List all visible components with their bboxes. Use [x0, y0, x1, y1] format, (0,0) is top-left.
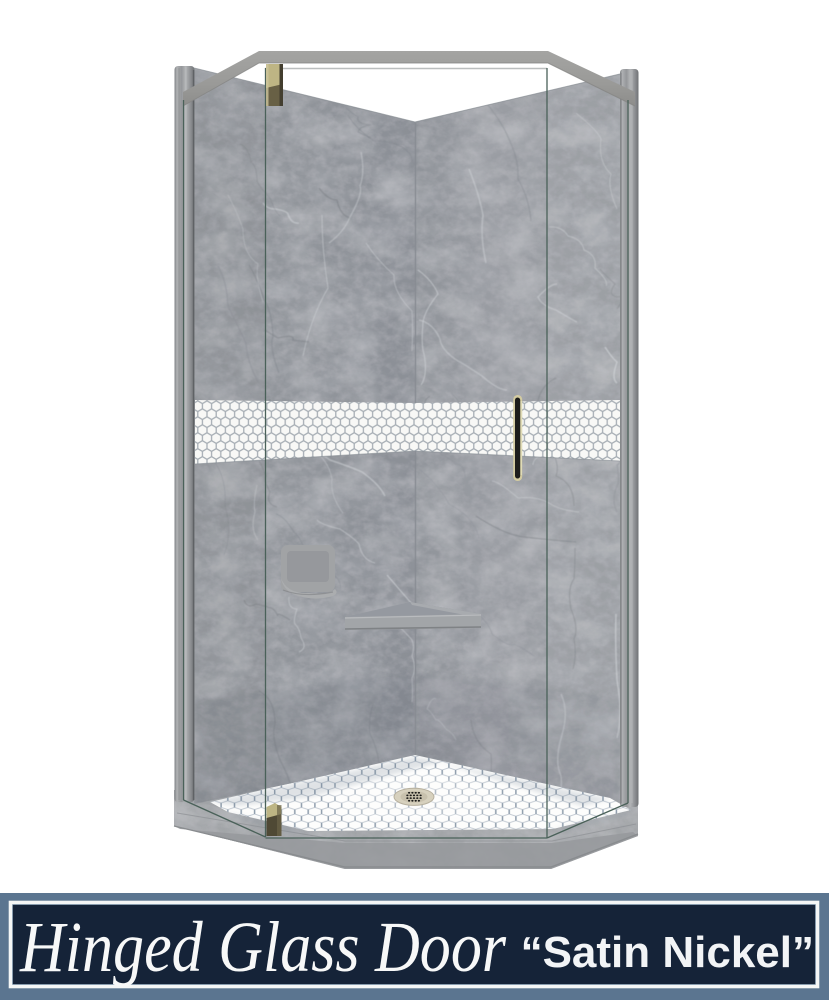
svg-text:“Satin Nickel”: “Satin Nickel”: [521, 928, 814, 977]
svg-text:Hinged Glass Door: Hinged Glass Door: [19, 907, 507, 987]
